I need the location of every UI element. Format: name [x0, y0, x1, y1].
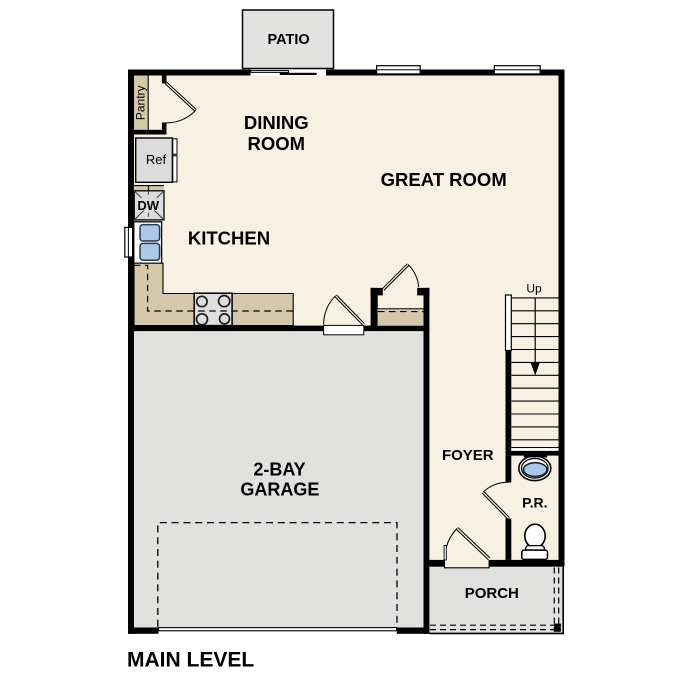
svg-text:GREAT ROOM: GREAT ROOM [381, 169, 507, 190]
svg-text:PORCH: PORCH [465, 585, 519, 602]
svg-text:Pantry: Pantry [134, 85, 148, 120]
svg-text:GARAGE: GARAGE [240, 479, 319, 499]
svg-text:DW: DW [137, 198, 159, 213]
svg-text:KITCHEN: KITCHEN [188, 228, 270, 249]
svg-text:Ref: Ref [146, 152, 167, 167]
svg-text:Up: Up [526, 282, 542, 296]
svg-text:DINING: DINING [244, 112, 309, 133]
svg-text:FOYER: FOYER [442, 447, 494, 464]
svg-text:2-BAY: 2-BAY [253, 460, 305, 480]
svg-text:ROOM: ROOM [248, 133, 306, 154]
svg-text:MAIN LEVEL: MAIN LEVEL [127, 648, 254, 671]
svg-text:PATIO: PATIO [268, 32, 310, 48]
svg-text:P.R.: P.R. [522, 495, 547, 511]
